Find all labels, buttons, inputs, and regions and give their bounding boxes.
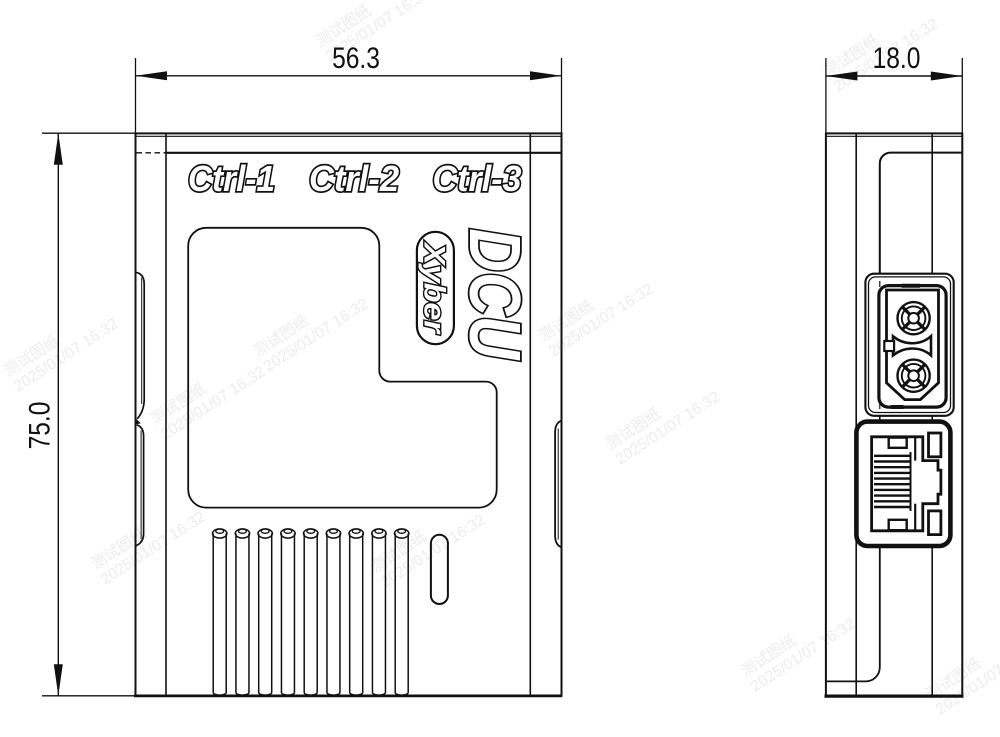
svg-text:75.0: 75.0 bbox=[22, 402, 56, 450]
svg-text:56.3: 56.3 bbox=[332, 40, 380, 74]
svg-text:Ctrl-1: Ctrl-1 bbox=[188, 158, 275, 199]
svg-text:DCU: DCU bbox=[454, 228, 534, 361]
svg-text:Ctrl-2: Ctrl-2 bbox=[309, 158, 399, 199]
svg-text:Ctrl-3: Ctrl-3 bbox=[433, 158, 522, 199]
svg-text:Xyber: Xyber bbox=[418, 241, 451, 336]
svg-text:18.0: 18.0 bbox=[873, 40, 921, 74]
